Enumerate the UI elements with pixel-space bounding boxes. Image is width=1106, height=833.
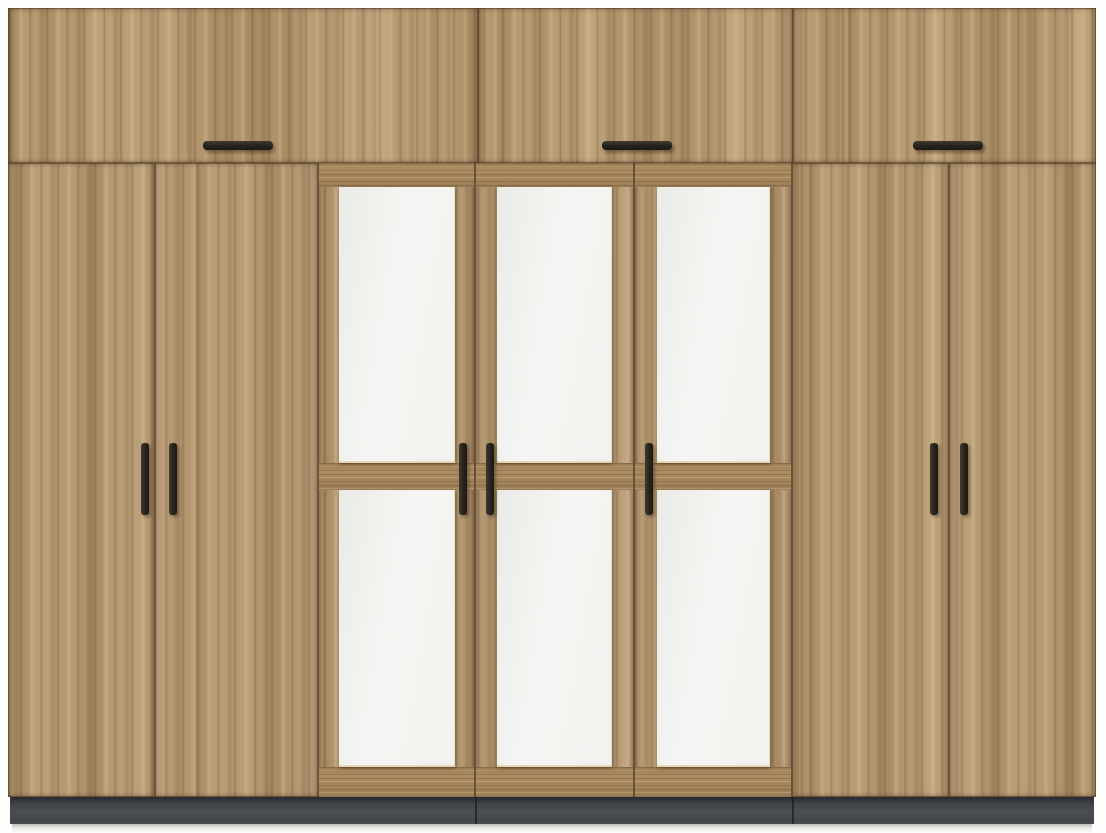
product-photo-background: { "palette": { "background": "#fdfdfc", … bbox=[0, 0, 1106, 830]
middle-door-3-top-rail bbox=[635, 163, 791, 187]
middle-door-1-handle bbox=[459, 443, 467, 515]
top-door-3 bbox=[793, 8, 1096, 163]
right-door-2 bbox=[949, 163, 1096, 797]
floor-shadow bbox=[12, 824, 1092, 833]
middle-door-1-bottom-rail bbox=[319, 767, 474, 797]
middle-door-2-upper-white-panel bbox=[497, 187, 612, 463]
top-door-1 bbox=[8, 8, 478, 163]
middle-door-3 bbox=[634, 163, 792, 797]
top-door-3-handle bbox=[913, 141, 983, 150]
plinth-joint-2 bbox=[792, 797, 794, 824]
right-door-1 bbox=[792, 163, 949, 797]
plinth-base bbox=[10, 797, 1094, 824]
middle-door-2-middle-rail bbox=[476, 463, 633, 490]
top-door-1-handle bbox=[203, 141, 273, 150]
plinth-joint-1 bbox=[475, 797, 477, 824]
middle-door-3-lower-white-panel bbox=[657, 490, 770, 767]
left-door-1-handle bbox=[141, 443, 149, 515]
middle-door-3-middle-rail bbox=[635, 463, 791, 490]
middle-door-3-upper-white-panel bbox=[657, 187, 770, 463]
middle-door-2 bbox=[475, 163, 634, 797]
middle-door-2-bottom-rail bbox=[476, 767, 633, 797]
middle-door-3-bottom-rail bbox=[635, 767, 791, 797]
middle-door-1-lower-white-panel bbox=[339, 490, 455, 767]
middle-door-2-handle bbox=[486, 443, 494, 515]
left-door-1 bbox=[8, 163, 155, 797]
wardrobe bbox=[8, 8, 1096, 824]
middle-door-1-middle-rail bbox=[319, 463, 474, 490]
middle-door-1-upper-white-panel bbox=[339, 187, 455, 463]
right-door-1-handle bbox=[930, 443, 938, 515]
middle-door-2-lower-white-panel bbox=[497, 490, 612, 767]
right-door-2-handle bbox=[960, 443, 968, 515]
top-door-2-handle bbox=[602, 141, 672, 150]
middle-door-2-top-rail bbox=[476, 163, 633, 187]
left-door-2 bbox=[155, 163, 318, 797]
top-door-2 bbox=[478, 8, 793, 163]
left-door-2-handle bbox=[169, 443, 177, 515]
middle-door-1-top-rail bbox=[319, 163, 474, 187]
middle-door-3-handle bbox=[645, 443, 653, 515]
middle-door-1 bbox=[318, 163, 475, 797]
